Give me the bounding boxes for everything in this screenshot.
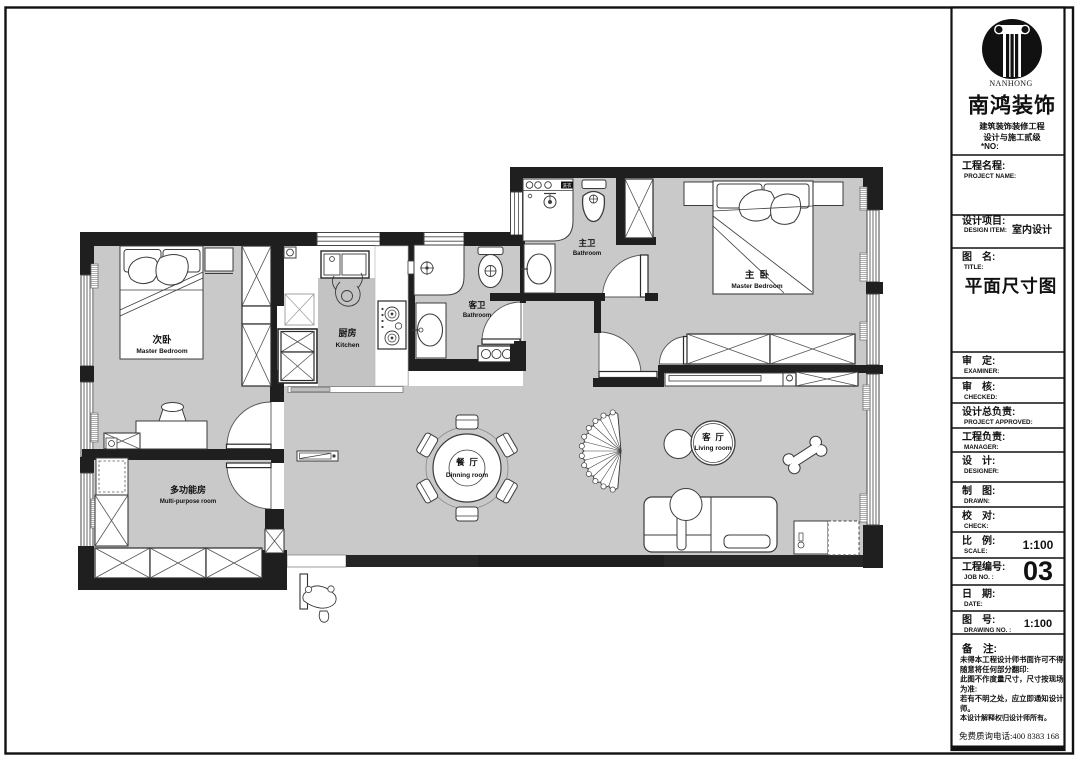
svg-text:免费质询电话:400 8383 168: 免费质询电话:400 8383 168 bbox=[959, 731, 1059, 741]
svg-text:南鸿装饰: 南鸿装饰 bbox=[968, 94, 1056, 118]
svg-text:客 厅: 客 厅 bbox=[701, 432, 724, 442]
svg-text:餐 厅: 餐 厅 bbox=[455, 457, 478, 467]
svg-text:次卧: 次卧 bbox=[152, 334, 172, 346]
svg-text:1:100: 1:100 bbox=[1023, 538, 1054, 552]
svg-text:03: 03 bbox=[1023, 556, 1053, 586]
svg-text:Bathroom: Bathroom bbox=[573, 251, 601, 257]
svg-text:1:100: 1:100 bbox=[1024, 618, 1052, 630]
svg-text:平面尺寸图: 平面尺寸图 bbox=[965, 276, 1058, 296]
svg-text:CHECKED:: CHECKED: bbox=[964, 394, 997, 401]
svg-text:工程名程:: 工程名程: bbox=[962, 159, 1005, 172]
svg-text:NANHONG: NANHONG bbox=[989, 79, 1032, 88]
svg-text:厨房: 厨房 bbox=[338, 327, 356, 338]
svg-text:此图不作度量尺寸，尺寸按现场: 此图不作度量尺寸，尺寸按现场 bbox=[960, 675, 1064, 684]
svg-text:多功能房: 多功能房 bbox=[170, 484, 206, 495]
svg-text:设 计:: 设 计: bbox=[962, 454, 995, 467]
svg-text:若有不明之处，应立即通知设计: 若有不明之处，应立即通知设计 bbox=[960, 694, 1064, 703]
svg-text:DATE:: DATE: bbox=[964, 601, 983, 608]
svg-text:Dinning room: Dinning room bbox=[446, 472, 488, 479]
svg-text:未得本工程设计师书面许可不得: 未得本工程设计师书面许可不得 bbox=[959, 655, 1064, 664]
svg-text:SCALE:: SCALE: bbox=[964, 548, 987, 555]
svg-text:PROJECT APPROVED:: PROJECT APPROVED: bbox=[964, 419, 1033, 426]
svg-text:室内设计: 室内设计 bbox=[1012, 223, 1052, 236]
svg-text:备 注:: 备 注: bbox=[961, 642, 997, 655]
svg-text:Master Bedroom: Master Bedroom bbox=[731, 283, 783, 290]
svg-text:*NO:: *NO: bbox=[981, 142, 999, 151]
svg-text:设计与施工贰级: 设计与施工贰级 bbox=[983, 132, 1041, 142]
svg-text:DRAWING NO. :: DRAWING NO. : bbox=[964, 627, 1011, 634]
svg-text:比 例:: 比 例: bbox=[962, 534, 995, 547]
svg-text:客卫: 客卫 bbox=[467, 300, 486, 310]
svg-text:CHECK:: CHECK: bbox=[964, 523, 989, 530]
svg-text:Living room: Living room bbox=[694, 445, 731, 452]
svg-text:审 核:: 审 核: bbox=[962, 380, 995, 393]
svg-text:DRAWN:: DRAWN: bbox=[964, 498, 990, 505]
svg-text:本设计解释权归设计师所有。: 本设计解释权归设计师所有。 bbox=[959, 713, 1051, 722]
svg-text:主卫: 主卫 bbox=[578, 238, 596, 248]
svg-text:图 号:: 图 号: bbox=[962, 614, 995, 626]
svg-text:JOB NO. :: JOB NO. : bbox=[964, 574, 994, 581]
svg-text:DESIGN ITEM:: DESIGN ITEM: bbox=[964, 227, 1007, 234]
svg-text:洗衣: 洗衣 bbox=[563, 182, 572, 189]
svg-text:图 名:: 图 名: bbox=[962, 250, 995, 263]
svg-text:Bathroom: Bathroom bbox=[463, 313, 491, 319]
svg-text:工程编号:: 工程编号: bbox=[962, 560, 1005, 573]
svg-text:审 定:: 审 定: bbox=[962, 354, 995, 367]
svg-text:Master Bedroom: Master Bedroom bbox=[136, 348, 188, 355]
svg-text:EXAMINER:: EXAMINER: bbox=[964, 368, 999, 375]
svg-text:DESIGNER:: DESIGNER: bbox=[964, 468, 999, 475]
svg-text:PROJECT NAME:: PROJECT NAME: bbox=[964, 173, 1016, 180]
svg-text:为准:: 为准: bbox=[960, 684, 977, 693]
svg-text:设计总负责:: 设计总负责: bbox=[962, 405, 1015, 418]
svg-text:Kitchen: Kitchen bbox=[336, 342, 360, 349]
svg-text:TITLE:: TITLE: bbox=[964, 264, 984, 271]
svg-text:Multi-purpose room: Multi-purpose room bbox=[160, 499, 216, 505]
svg-text:MANAGER:: MANAGER: bbox=[964, 444, 999, 451]
svg-text:校 对:: 校 对: bbox=[962, 509, 995, 522]
svg-text:制 图:: 制 图: bbox=[962, 484, 995, 497]
svg-text:主 卧: 主 卧 bbox=[745, 269, 770, 281]
svg-text:随意将任何部分翻印:: 随意将任何部分翻印: bbox=[960, 665, 1029, 674]
svg-text:建筑装饰装修工程: 建筑装饰装修工程 bbox=[979, 121, 1045, 131]
svg-text:日 期:: 日 期: bbox=[962, 587, 995, 600]
svg-text:设计项目:: 设计项目: bbox=[962, 214, 1005, 227]
svg-text:工程负责:: 工程负责: bbox=[962, 430, 1005, 443]
svg-text:师。: 师。 bbox=[960, 704, 975, 713]
